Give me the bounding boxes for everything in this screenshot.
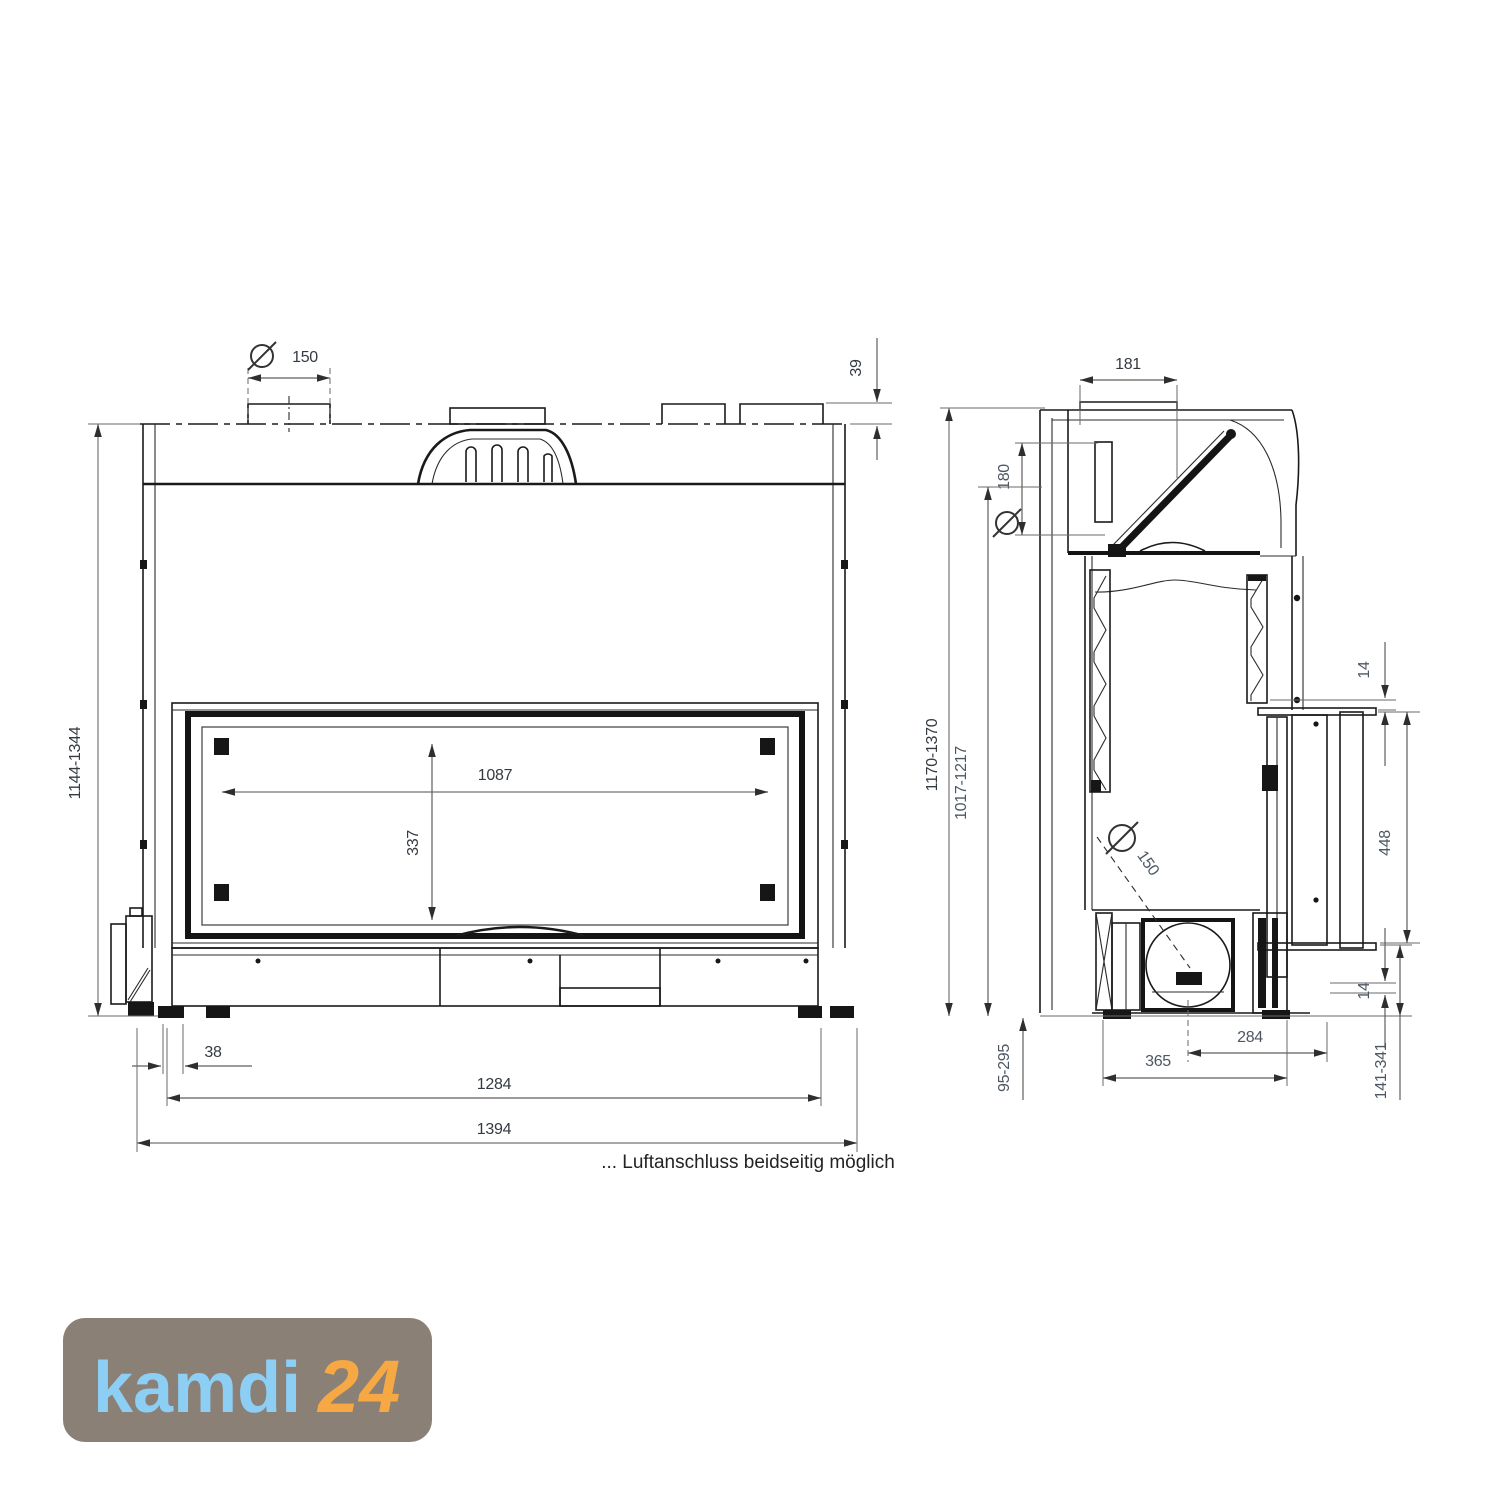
dim-label-door-height: 448 <box>1377 830 1394 856</box>
side-door-latch <box>1262 765 1278 791</box>
dim-label-bottom-gap: 14 <box>1356 982 1373 1000</box>
dim-side-door-height: 448 <box>1377 712 1420 943</box>
glass-pane <box>202 727 788 925</box>
dim-label-glass-height: 337 <box>405 830 422 856</box>
dome-top-plate <box>450 408 545 424</box>
dim-glass-width: 1087 <box>222 767 768 792</box>
dim-label-bottom-clearance: 141-341 <box>1373 1042 1390 1099</box>
dome-slot-1 <box>466 447 476 482</box>
dim-label-side-overall-height: 1170-1370 <box>924 718 941 791</box>
screenshot-canvas: 150 39 1144-1344 1087 337 <box>0 0 1500 1500</box>
side-door-panel-outer <box>1340 712 1363 948</box>
front-foot-4 <box>830 1006 854 1018</box>
dim-label-overall-width: 1394 <box>477 1121 512 1138</box>
dim-side-body-height: 1017-1217 <box>953 487 1042 1016</box>
dim-front-collar-height: 39 <box>826 338 892 460</box>
front-top-stub-1 <box>662 404 725 424</box>
caption-air-connection-note: ... Luftanschluss beidseitig möglich <box>601 1152 895 1173</box>
zigzag-baffle-right <box>1247 575 1267 703</box>
dim-label-collar-height: 39 <box>848 359 865 377</box>
side-duct-inner-curve <box>1230 420 1281 548</box>
dome-slot-2 <box>492 445 502 482</box>
kamdi24-logo: kamdi 24 <box>63 1318 432 1442</box>
dim-front-offset: 38 <box>132 1024 252 1074</box>
dim-side-top-gap: 14 <box>1270 642 1396 766</box>
diameter-icon <box>248 342 276 370</box>
damper-flap <box>1108 429 1236 557</box>
side-top-right-curve <box>1292 410 1299 556</box>
zigzag-baffle-left <box>1090 570 1110 792</box>
dim-label-body-width: 1284 <box>477 1076 512 1093</box>
dim-label-flue-depth: 181 <box>1115 356 1141 373</box>
dim-label-top-gap: 14 <box>1356 661 1373 679</box>
side-door-panel-inner <box>1292 715 1327 945</box>
dim-plinth-height: 95-295 <box>996 1018 1023 1100</box>
front-foot-1 <box>158 1006 184 1018</box>
side-top-stub <box>1080 402 1177 410</box>
dome-profile-bump <box>1140 543 1205 552</box>
side-foot-2 <box>1262 1010 1290 1019</box>
front-foot-3 <box>798 1006 822 1018</box>
dim-glass-height: 337 <box>405 744 432 920</box>
front-lever <box>111 908 154 1016</box>
door-frame-thick <box>188 714 802 936</box>
diameter-icon <box>1106 822 1138 854</box>
logo-suffix-text: 24 <box>316 1345 400 1428</box>
dim-label-air-inlet-offset: 284 <box>1237 1029 1263 1046</box>
dim-label-air-inlet-diameter: 150 <box>1133 848 1162 879</box>
dome-slot-3 <box>518 447 528 482</box>
dim-label-glass-width: 1087 <box>478 767 513 784</box>
glass-clip-top-left <box>214 738 229 755</box>
glass-clip-bottom-right <box>760 884 775 901</box>
dim-label-base-depth: 365 <box>1145 1053 1171 1070</box>
side-base <box>1092 913 1310 1019</box>
glass-clip-top-right <box>760 738 775 755</box>
dim-label-side-body-height: 1017-1217 <box>953 746 970 820</box>
front-top-stub-2 <box>740 404 823 424</box>
logo-brand-text: kamdi <box>93 1348 301 1428</box>
front-base <box>172 948 818 1006</box>
dim-label-plinth-height: 95-295 <box>996 1044 1013 1092</box>
side-view: 150 181 180 1170-1370 <box>924 356 1420 1100</box>
base-step <box>560 988 660 1006</box>
glass-clip-bottom-left <box>214 884 229 901</box>
dim-bottom-clearance: 141-341 <box>1373 945 1412 1100</box>
fireplace-technical-drawing: 150 39 1144-1344 1087 337 <box>0 0 1500 1500</box>
dim-body-width: 1284 <box>167 1028 821 1106</box>
dim-label-front-offset: 38 <box>204 1044 222 1061</box>
dim-label-flue-diameter: 150 <box>292 349 318 366</box>
diameter-icon <box>993 509 1021 537</box>
front-view: 150 39 1144-1344 1087 337 <box>67 338 892 1152</box>
dome-slot-4 <box>544 454 552 482</box>
door-frame-outer <box>172 703 818 948</box>
side-foot-1 <box>1103 1010 1131 1019</box>
firebox-dome-profile <box>1095 580 1256 592</box>
dim-label-side-flue-diameter: 180 <box>996 464 1013 490</box>
dim-side-overall-height: 1170-1370 <box>924 408 1045 1016</box>
side-flue-slot <box>1095 442 1112 522</box>
dim-side-flue-diameter: 180 <box>993 443 1105 537</box>
dim-label-overall-height: 1144-1344 <box>67 726 84 799</box>
dim-front-overall-height: 1144-1344 <box>67 424 158 1016</box>
front-foot-2 <box>206 1006 230 1018</box>
